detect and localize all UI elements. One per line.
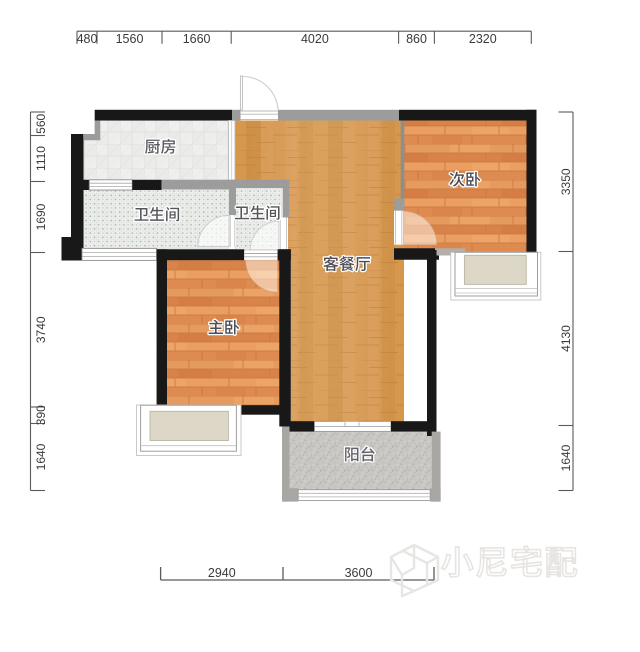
svg-text:2320: 2320: [469, 32, 497, 46]
svg-text:860: 860: [406, 32, 427, 46]
svg-text:1640: 1640: [34, 443, 48, 470]
svg-text:1560: 1560: [116, 32, 144, 46]
svg-text:3600: 3600: [345, 566, 373, 580]
svg-text:1640: 1640: [559, 444, 573, 471]
svg-text:560: 560: [34, 113, 48, 133]
svg-text:1110: 1110: [34, 146, 48, 171]
svg-text:3740: 3740: [34, 316, 48, 343]
svg-text:390: 390: [34, 405, 48, 425]
svg-text:1690: 1690: [34, 203, 48, 230]
svg-text:480: 480: [77, 32, 98, 46]
svg-text:4130: 4130: [559, 325, 573, 352]
svg-text:3350: 3350: [559, 168, 573, 195]
svg-text:4020: 4020: [301, 32, 329, 46]
svg-text:2940: 2940: [208, 566, 236, 580]
svg-text:1660: 1660: [183, 32, 211, 46]
